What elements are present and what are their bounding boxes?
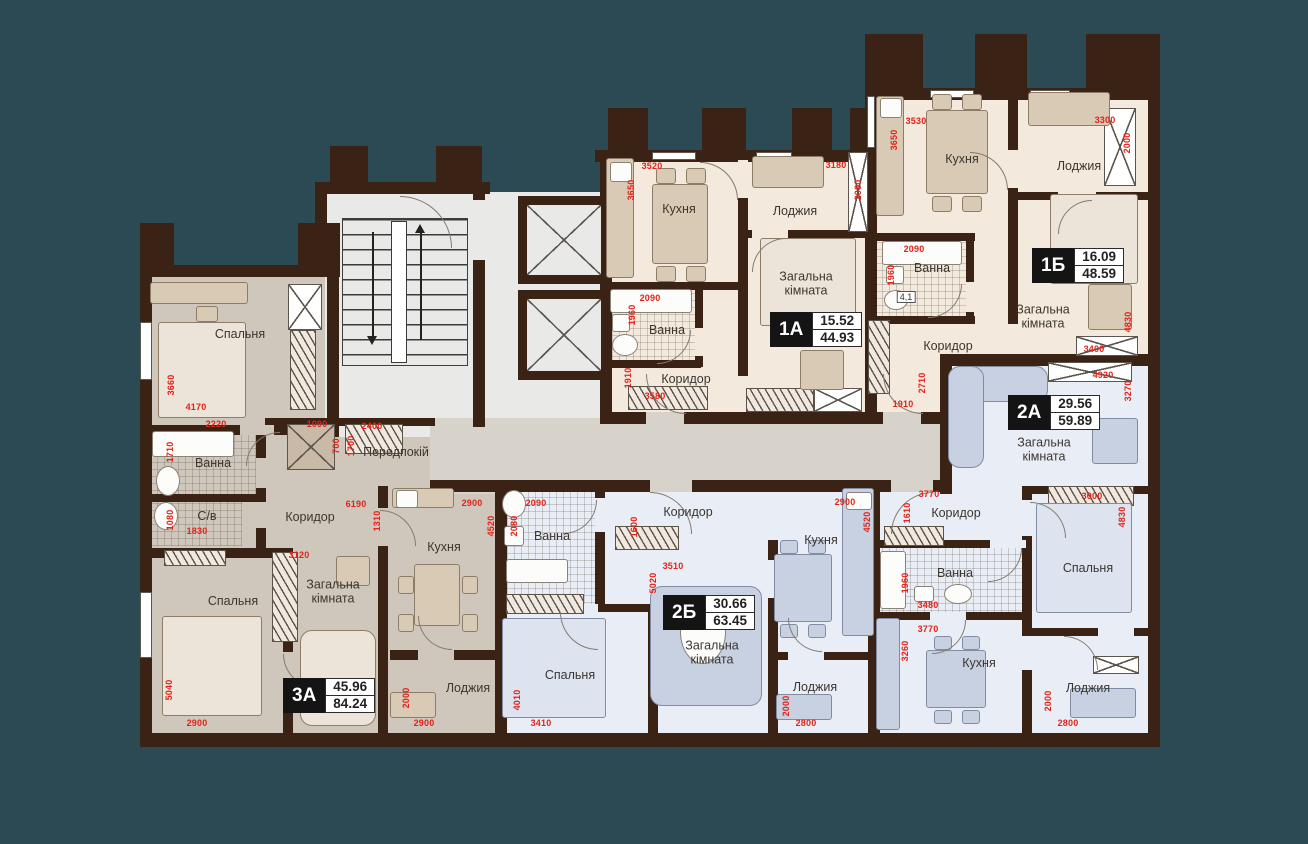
furniture-chair [462, 614, 478, 632]
dimension-label: 1080 [165, 510, 175, 531]
dimension-label: 2000 [1043, 691, 1053, 712]
furniture-sink [396, 490, 418, 508]
staircase-down-arrow-icon [367, 336, 377, 345]
window-x-glazing [288, 284, 322, 330]
dimension-label: 2900 [187, 718, 208, 728]
furniture-toilet [944, 584, 972, 604]
door-opening [256, 502, 266, 528]
dimension-label: 4010 [512, 690, 522, 711]
room-label: Коридор [931, 506, 980, 520]
dimension-label: 2400 [362, 421, 383, 431]
dimension-label: 3580 [645, 391, 666, 401]
balcony-opening [787, 747, 857, 787]
dimension-label: 3270 [1123, 381, 1133, 402]
apartment-id: 2А [1008, 395, 1050, 430]
wardrobe-hatch [290, 330, 316, 410]
door-opening [1008, 150, 1018, 188]
dimension-label: 1310 [372, 511, 382, 532]
dimension-label: 3530 [906, 116, 927, 126]
total-area-value: 59.89 [1051, 412, 1099, 429]
dimension-label: 2710 [917, 373, 927, 394]
elevator-shaft [518, 196, 610, 284]
dimension-label: 3770 [918, 624, 939, 634]
dimension-label: 3400 [1084, 344, 1105, 354]
balcony-pier [140, 223, 174, 277]
room-label: Коридор [285, 510, 334, 524]
dimension-label: 1830 [187, 526, 208, 536]
room-label: С/в [197, 509, 216, 523]
window-x-glazing [1048, 362, 1132, 382]
dimension-label: 2900 [414, 718, 435, 728]
dimension-label: 5020 [648, 573, 658, 594]
window-x-glazing [814, 388, 862, 412]
dimension-label: 3000 [1082, 491, 1103, 501]
window-x-glazing [1093, 656, 1139, 674]
room-label: Лоджия [1066, 681, 1110, 695]
total-area-value: 48.59 [1075, 265, 1123, 282]
living-area-value: 15.52 [813, 313, 861, 329]
dimension-label: 4520 [862, 512, 872, 533]
dimension-label: 1710 [165, 442, 175, 463]
living-area-value: 30.66 [706, 596, 754, 612]
apartment-areas: 16.0948.59 [1074, 248, 1124, 283]
dimension-label: 4520 [486, 516, 496, 537]
door-opening [883, 412, 921, 424]
room-label: Ванна [649, 323, 685, 337]
room-label: Кухня [945, 152, 978, 166]
furniture-chair [398, 614, 414, 632]
room-label: Загальна кімната [996, 436, 1092, 465]
dimension-label: 3300 [1095, 115, 1116, 125]
furniture-chair [932, 196, 952, 212]
room-label: Спальня [215, 327, 265, 341]
total-area-value: 84.24 [326, 695, 374, 712]
wall [605, 360, 701, 368]
window [140, 322, 152, 380]
furniture-toilet [502, 490, 526, 518]
staircase-arrow-stem [420, 232, 422, 340]
dimension-label: 2090 [526, 498, 547, 508]
furniture-kitchen-counter [876, 618, 900, 730]
furniture-corner-sofa [948, 366, 984, 468]
door-opening [966, 282, 974, 312]
dimension-label: 4920 [1093, 370, 1114, 380]
balcony-opening [982, 747, 1038, 787]
balcony-opening [500, 747, 562, 787]
balcony-pier [975, 34, 1027, 100]
dimension-label: 3410 [531, 718, 552, 728]
door-opening [738, 160, 748, 198]
furniture-chair [780, 540, 798, 554]
balcony-pier [702, 108, 746, 162]
living-area-value: 29.56 [1051, 396, 1099, 412]
room-label: Кухня [804, 533, 837, 547]
furniture-toilet [612, 334, 638, 356]
dimension-label: 4170 [186, 402, 207, 412]
dimension-label: 2090 [640, 293, 661, 303]
dimension-label: 1600 [629, 517, 639, 538]
room-label: Ванна [534, 529, 570, 543]
furniture-chair [962, 710, 980, 724]
furniture-chair [932, 94, 952, 110]
door-opening [695, 328, 703, 356]
room-label: Лоджия [773, 204, 817, 218]
balcony-pier [608, 108, 648, 162]
dimension-label: 3120 [289, 550, 310, 560]
dimension-label: 3260 [900, 641, 910, 662]
furniture-armchair [800, 350, 844, 390]
balcony-opening [900, 747, 945, 787]
total-area-value: 44.93 [813, 329, 861, 346]
dimension-label: 1610 [902, 503, 912, 524]
door-opening [930, 612, 966, 620]
balcony-pier [792, 108, 832, 162]
living-area-value: 16.09 [1075, 249, 1123, 265]
dimension-label: 3650 [889, 130, 899, 151]
room-label: Коридор [663, 505, 712, 519]
room-label: Передпокій [363, 445, 429, 459]
dimension-label: 3480 [918, 600, 939, 610]
window-x-glazing [287, 424, 335, 470]
room-label: Ванна [937, 566, 973, 580]
furniture-chair [962, 196, 982, 212]
room-label: Загальна кімната [287, 578, 379, 607]
furniture-chair [398, 576, 414, 594]
balcony-opening [175, 747, 325, 787]
furniture-bathtub [506, 559, 568, 583]
furniture-chair [462, 576, 478, 594]
dimension-label: 1960 [627, 305, 637, 326]
room-label: Коридор [661, 372, 710, 386]
door-opening [788, 652, 824, 660]
window [867, 96, 875, 148]
apartment-areas: 15.5244.93 [812, 312, 862, 347]
wardrobe-hatch [506, 594, 584, 614]
apartment-badge-2Б: 2Б30.6663.45 [663, 595, 755, 630]
door-opening [473, 200, 485, 260]
room-label: Кухня [662, 202, 695, 216]
apartment-id: 3А [283, 678, 325, 713]
dimension-label: 2000 [781, 696, 791, 717]
dimension-label: 2220 [206, 419, 227, 429]
dimension-label: 2000 [1122, 133, 1132, 154]
dimension-label: 1960 [886, 265, 896, 286]
door-opening [650, 480, 692, 492]
room-label: Лоджия [1057, 159, 1101, 173]
furniture-chair [686, 266, 706, 282]
dimension-label: 1700 [346, 436, 356, 457]
apartment-badge-3А: 3А45.9684.24 [283, 678, 375, 713]
balcony-opening [697, 747, 767, 787]
dimension-label: 2800 [796, 718, 817, 728]
dimension-label: 2900 [462, 498, 483, 508]
dimension-label: 2000 [401, 688, 411, 709]
door-opening [1098, 628, 1134, 636]
wall [875, 233, 975, 241]
balcony-pier [865, 34, 923, 100]
dimension-label: 3180 [826, 160, 847, 170]
balcony-pier [298, 223, 340, 277]
dimension-label: 4830 [1117, 507, 1127, 528]
room-label: Спальня [545, 668, 595, 682]
room-label: Кухня [427, 540, 460, 554]
dimension-label: 3770 [919, 489, 940, 499]
dimension-label: 2000 [853, 180, 863, 201]
room-label: Лоджия [446, 681, 490, 695]
door-opening [646, 412, 684, 424]
furniture-bed [162, 616, 262, 716]
furniture-chair [962, 94, 982, 110]
room-label: Кухня [962, 656, 995, 670]
dimension-label: 3660 [166, 375, 176, 396]
dimension-label: 2090 [904, 244, 925, 254]
wall [1148, 88, 1160, 747]
room-label: Спальня [208, 594, 258, 608]
wardrobe-hatch [746, 388, 814, 412]
furniture-desk [390, 692, 436, 718]
area-note-label: 4,1 [897, 291, 916, 303]
dimension-label: 1090 [307, 419, 328, 429]
room-label: Спальня [1063, 561, 1113, 575]
dimension-label: 2800 [1058, 718, 1079, 728]
apartment-badge-1А: 1А15.5244.93 [770, 312, 862, 347]
furniture-chair [934, 710, 952, 724]
balcony-opening [585, 747, 657, 787]
furniture-table [774, 554, 832, 622]
balcony-pier [436, 146, 482, 194]
apartment-id: 1А [770, 312, 812, 347]
living-area-value: 45.96 [326, 679, 374, 695]
apartment-areas: 45.9684.24 [325, 678, 375, 713]
dimension-label: 3510 [663, 561, 684, 571]
furniture-sink [880, 98, 902, 118]
window [140, 592, 152, 658]
door-opening [418, 650, 454, 660]
furniture-kitchen-counter [842, 488, 874, 636]
dimension-label: 5040 [164, 680, 174, 701]
door-opening [1022, 636, 1032, 670]
wall [768, 652, 880, 660]
dimension-label: 6190 [346, 499, 367, 509]
wall [875, 316, 975, 324]
dimension-label: 3520 [642, 161, 663, 171]
room-label: Загальна кімната [664, 639, 760, 668]
room-label: Коридор [923, 339, 972, 353]
furniture-desk [150, 282, 248, 304]
dimension-label: 3650 [626, 180, 636, 201]
room-label: Ванна [914, 261, 950, 275]
floor-plan: СпальняВаннаС/вКоридорСпальняЗагальна кі… [0, 0, 1308, 844]
dimension-label: 2080 [509, 516, 519, 537]
dimension-label: 4830 [1123, 312, 1133, 333]
furniture-chair [196, 306, 218, 322]
room-label: Загальна кімната [760, 270, 852, 299]
total-area-value: 63.45 [706, 612, 754, 629]
dimension-label: 1910 [893, 399, 914, 409]
furniture-toilet [156, 466, 180, 496]
apartment-areas: 30.6663.45 [705, 595, 755, 630]
balcony-pier [1086, 34, 1160, 100]
apartment-id: 2Б [663, 595, 705, 630]
door-opening [990, 540, 1026, 548]
balcony-opening [1062, 747, 1134, 787]
elevator-shaft [518, 290, 610, 380]
room-label: Загальна кімната [995, 303, 1091, 332]
furniture-chair [656, 266, 676, 282]
dimension-label: 1960 [900, 573, 910, 594]
staircase-arrow-stem [372, 232, 374, 340]
wardrobe-hatch [164, 550, 226, 566]
dimension-label: 2900 [835, 497, 856, 507]
wall [327, 265, 339, 437]
room-label: Лоджия [793, 680, 837, 694]
furniture-chair [962, 636, 980, 650]
dimension-label: 1910 [623, 368, 633, 389]
apartment-badge-1Б: 1Б16.0948.59 [1032, 248, 1124, 283]
apartment-id: 1Б [1032, 248, 1074, 283]
balcony-pier [330, 146, 368, 194]
door-opening [752, 230, 788, 238]
apartment-areas: 29.5659.89 [1050, 395, 1100, 430]
window [652, 152, 696, 160]
furniture-desk [752, 156, 824, 188]
room-label: Ванна [195, 456, 231, 470]
dimension-label: 700 [331, 438, 341, 454]
apartment-badge-2А: 2А29.5659.89 [1008, 395, 1100, 430]
